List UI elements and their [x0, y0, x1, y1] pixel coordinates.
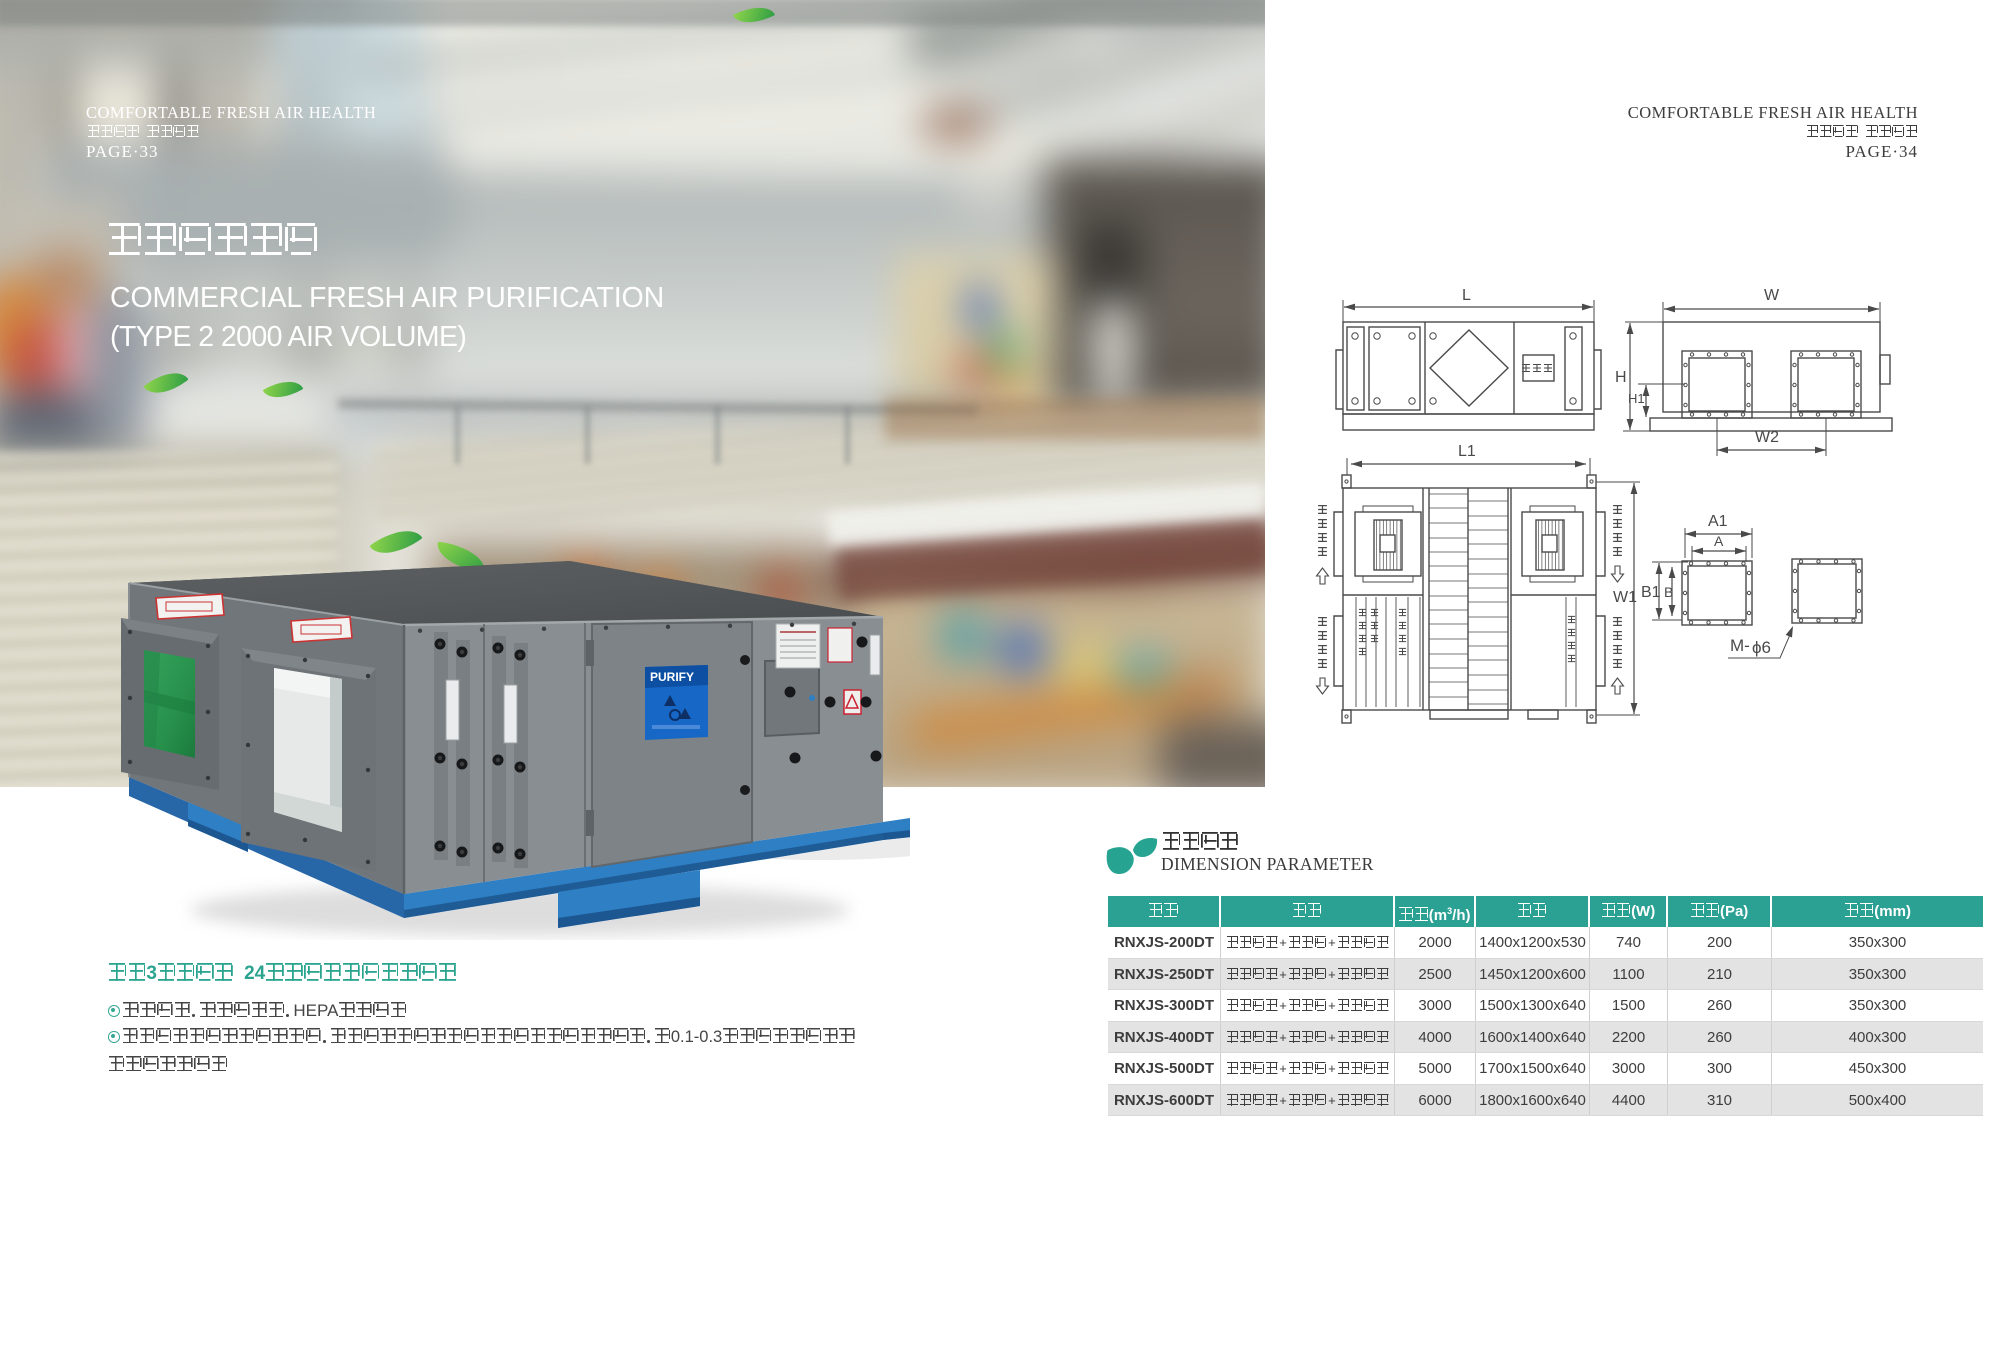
svg-text:H: H	[1615, 369, 1627, 386]
svg-text:B: B	[1664, 584, 1673, 600]
svg-text:B1: B1	[1641, 584, 1661, 601]
svg-text:W2: W2	[1755, 429, 1779, 446]
svg-text:W: W	[1764, 287, 1780, 304]
svg-text:H1: H1	[1628, 391, 1645, 406]
svg-text:A1: A1	[1708, 513, 1728, 530]
svg-text:ϕ6: ϕ6	[1752, 638, 1771, 657]
svg-text:L1: L1	[1458, 443, 1476, 460]
svg-text:A: A	[1714, 533, 1724, 549]
svg-text:M-: M-	[1730, 636, 1750, 655]
svg-text:W1: W1	[1613, 589, 1637, 606]
svg-text:PURIFY: PURIFY	[650, 670, 694, 684]
svg-text:L: L	[1462, 287, 1471, 304]
